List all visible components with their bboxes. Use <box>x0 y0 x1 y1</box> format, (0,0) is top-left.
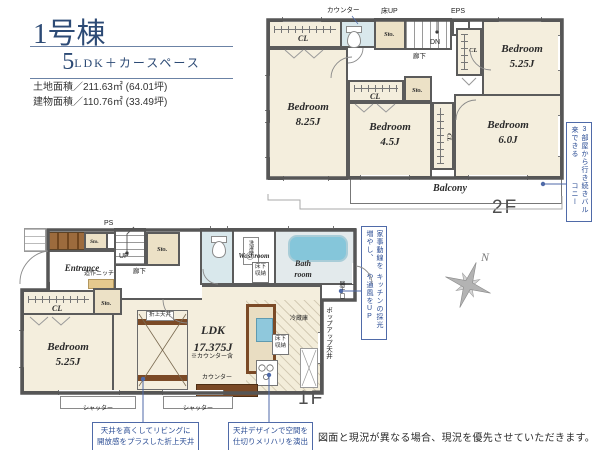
room-2f-storage-mid-label: Sto. <box>412 88 422 95</box>
title-divider-bottom <box>30 78 233 79</box>
window <box>58 390 120 395</box>
room-1f-storage-closet: Sto. <box>93 288 122 315</box>
underfloor-storage-kitchen: 床下収納 <box>272 334 289 355</box>
plan-type-text: LDK＋カースペース <box>74 56 201 70</box>
floor-1f-label: 1F <box>298 388 324 410</box>
room-1f-closet: CL <box>22 290 95 315</box>
window <box>162 390 224 395</box>
backdoor-opening <box>352 263 357 284</box>
room-2f-closet-right-label: CL <box>445 133 452 141</box>
niche-label: 造作ニッチ <box>84 271 114 277</box>
window <box>265 122 270 158</box>
entrance-steps <box>48 232 86 250</box>
room-1f-washroom-label: Washroom <box>232 252 276 262</box>
closet-rod <box>274 26 336 33</box>
room-2f-closet-topright: CL <box>456 28 482 76</box>
room-2f-toilet <box>340 20 376 48</box>
room-2f-storage-top-label: Sto. <box>384 32 394 39</box>
balcony-annotation: 3部屋から行き来できる 続きバルコニー <box>566 122 592 222</box>
window <box>558 115 563 157</box>
shutter-right: シャッター <box>163 396 233 409</box>
kitchen-sink-icon <box>256 318 273 342</box>
popup-ceiling-label: ポップアップ天井 <box>324 307 331 379</box>
coffered-ceiling-label: 折上天井 <box>146 311 174 321</box>
room-2f-bedroom-60-label: Bedroom6.0J <box>462 118 554 149</box>
window <box>360 175 410 180</box>
disclaimer-text: 図面と現況が異なる場合、現況を優先させていただきます。 <box>318 429 595 444</box>
room-2f-closet-topleft: CL <box>268 20 342 48</box>
window <box>19 330 24 368</box>
closet-rod <box>354 85 398 92</box>
window <box>282 17 322 22</box>
fridge-space <box>300 348 318 388</box>
compass-north-label: N <box>481 250 489 265</box>
eps-label: EPS <box>451 8 465 15</box>
window <box>318 332 323 364</box>
stairs-up-label: UP <box>119 253 129 260</box>
balcony-label: Balcony <box>420 182 480 196</box>
room-1f-toilet <box>200 228 234 285</box>
stairs-2f <box>404 18 452 50</box>
coffered-callout: 天井を高くしてリビングに 開放感をプラスした折上天井 <box>92 422 199 450</box>
window <box>558 35 563 71</box>
counter-1f-label: カウンター <box>202 375 232 381</box>
room-2f-closet-mid-label: CL <box>370 93 380 101</box>
window <box>265 75 270 111</box>
toilet-bowl-icon <box>347 31 361 48</box>
room-1f-bedroom-label: Bedroom5.25J <box>26 340 110 371</box>
room-2f-storage-top: Sto. <box>374 18 406 50</box>
partition-callout: 天井デザインで空間を 仕切りメリハリを演出 <box>228 422 313 450</box>
window <box>283 176 329 181</box>
room-1f-storage-hall-label: Sto. <box>157 247 167 254</box>
ldk-note: ※カウンター含 <box>191 354 233 360</box>
hallway-2f-label: 廊下 <box>413 54 426 61</box>
window <box>288 226 334 231</box>
area-info: 土地面積／211.63㎡ (64.01坪) 建物面積／110.76㎡ (33.4… <box>33 81 167 110</box>
underfloor-storage-washroom: 床下収納 <box>252 262 269 283</box>
closet-rod <box>461 34 468 70</box>
hallway-1f <box>114 283 202 300</box>
kitchen-annotation: 家事動線を増やし、 キッチンの採光や通風をUP <box>361 226 387 340</box>
room-2f-bedroom-525-label: Bedroom5.25J <box>486 42 558 73</box>
hallway-1f-label: 廊下 <box>133 269 146 276</box>
shutter-left: シャッター <box>60 396 136 409</box>
room-2f-closet-topright-label: CL <box>469 48 477 55</box>
stairs-down-label: DN <box>430 39 440 46</box>
room-2f-bedroom-45-label: Bedroom4.5J <box>352 120 428 151</box>
coffered-beam <box>138 375 187 381</box>
window <box>468 175 528 180</box>
toilet-bowl-icon <box>212 241 226 258</box>
fridge-label: 冷蔵庫 <box>290 316 308 322</box>
coffered-ceiling-box <box>137 310 188 390</box>
title-divider-top <box>30 46 233 47</box>
room-2f-closet-right: CL <box>432 102 454 170</box>
floor-up-label: 床UP <box>381 8 398 15</box>
room-2f-storage-mid: Sto. <box>404 76 432 102</box>
stove-icon <box>256 360 278 386</box>
room-1f-storage-hall: Sto. <box>146 232 180 266</box>
entrance-door-opening <box>45 252 50 282</box>
room-1f-storage-entry-label: Sto. <box>90 240 99 246</box>
plan-type-number: 5 <box>62 49 74 75</box>
stairs-1f <box>114 228 146 266</box>
counter-2f-label: カウンター <box>327 8 360 15</box>
floor-2f-label: 2F <box>492 197 518 219</box>
porch-steps <box>24 228 46 252</box>
room-1f-closet-label: CL <box>52 305 62 313</box>
land-area: 土地面積／211.63㎡ (64.01坪) <box>33 81 167 96</box>
room-1f-storage-entry: Sto. <box>84 232 108 250</box>
door-arc-entrance <box>20 251 48 284</box>
compass-icon <box>445 262 490 307</box>
door-arc-toilet-2f <box>348 48 363 63</box>
room-1f-ldk-label: LDK17.375J <box>180 322 246 356</box>
room-1f-storage-closet-label: Sto. <box>101 301 111 308</box>
room-2f-closet-topleft-label: CL <box>298 35 308 43</box>
room-2f-bedroom-825-label: Bedroom8.25J <box>272 100 344 131</box>
closet-rod <box>437 108 444 164</box>
backdoor-label: 勝手口 <box>338 281 344 305</box>
ps-label: PS <box>104 220 113 227</box>
room-1f-bathroom-label: Bath room <box>282 258 324 280</box>
room-2f-closet-mid: CL <box>348 80 404 102</box>
closet-rod <box>28 296 89 303</box>
window <box>498 17 542 22</box>
floorplan-page: 1号棟 5LDK＋カースペース 土地面積／211.63㎡ (64.01坪) 建物… <box>0 0 600 450</box>
building-area: 建物面積／110.76㎡ (33.49坪) <box>33 96 167 111</box>
plan-type: 5LDK＋カースペース <box>30 49 233 76</box>
window <box>210 226 228 231</box>
